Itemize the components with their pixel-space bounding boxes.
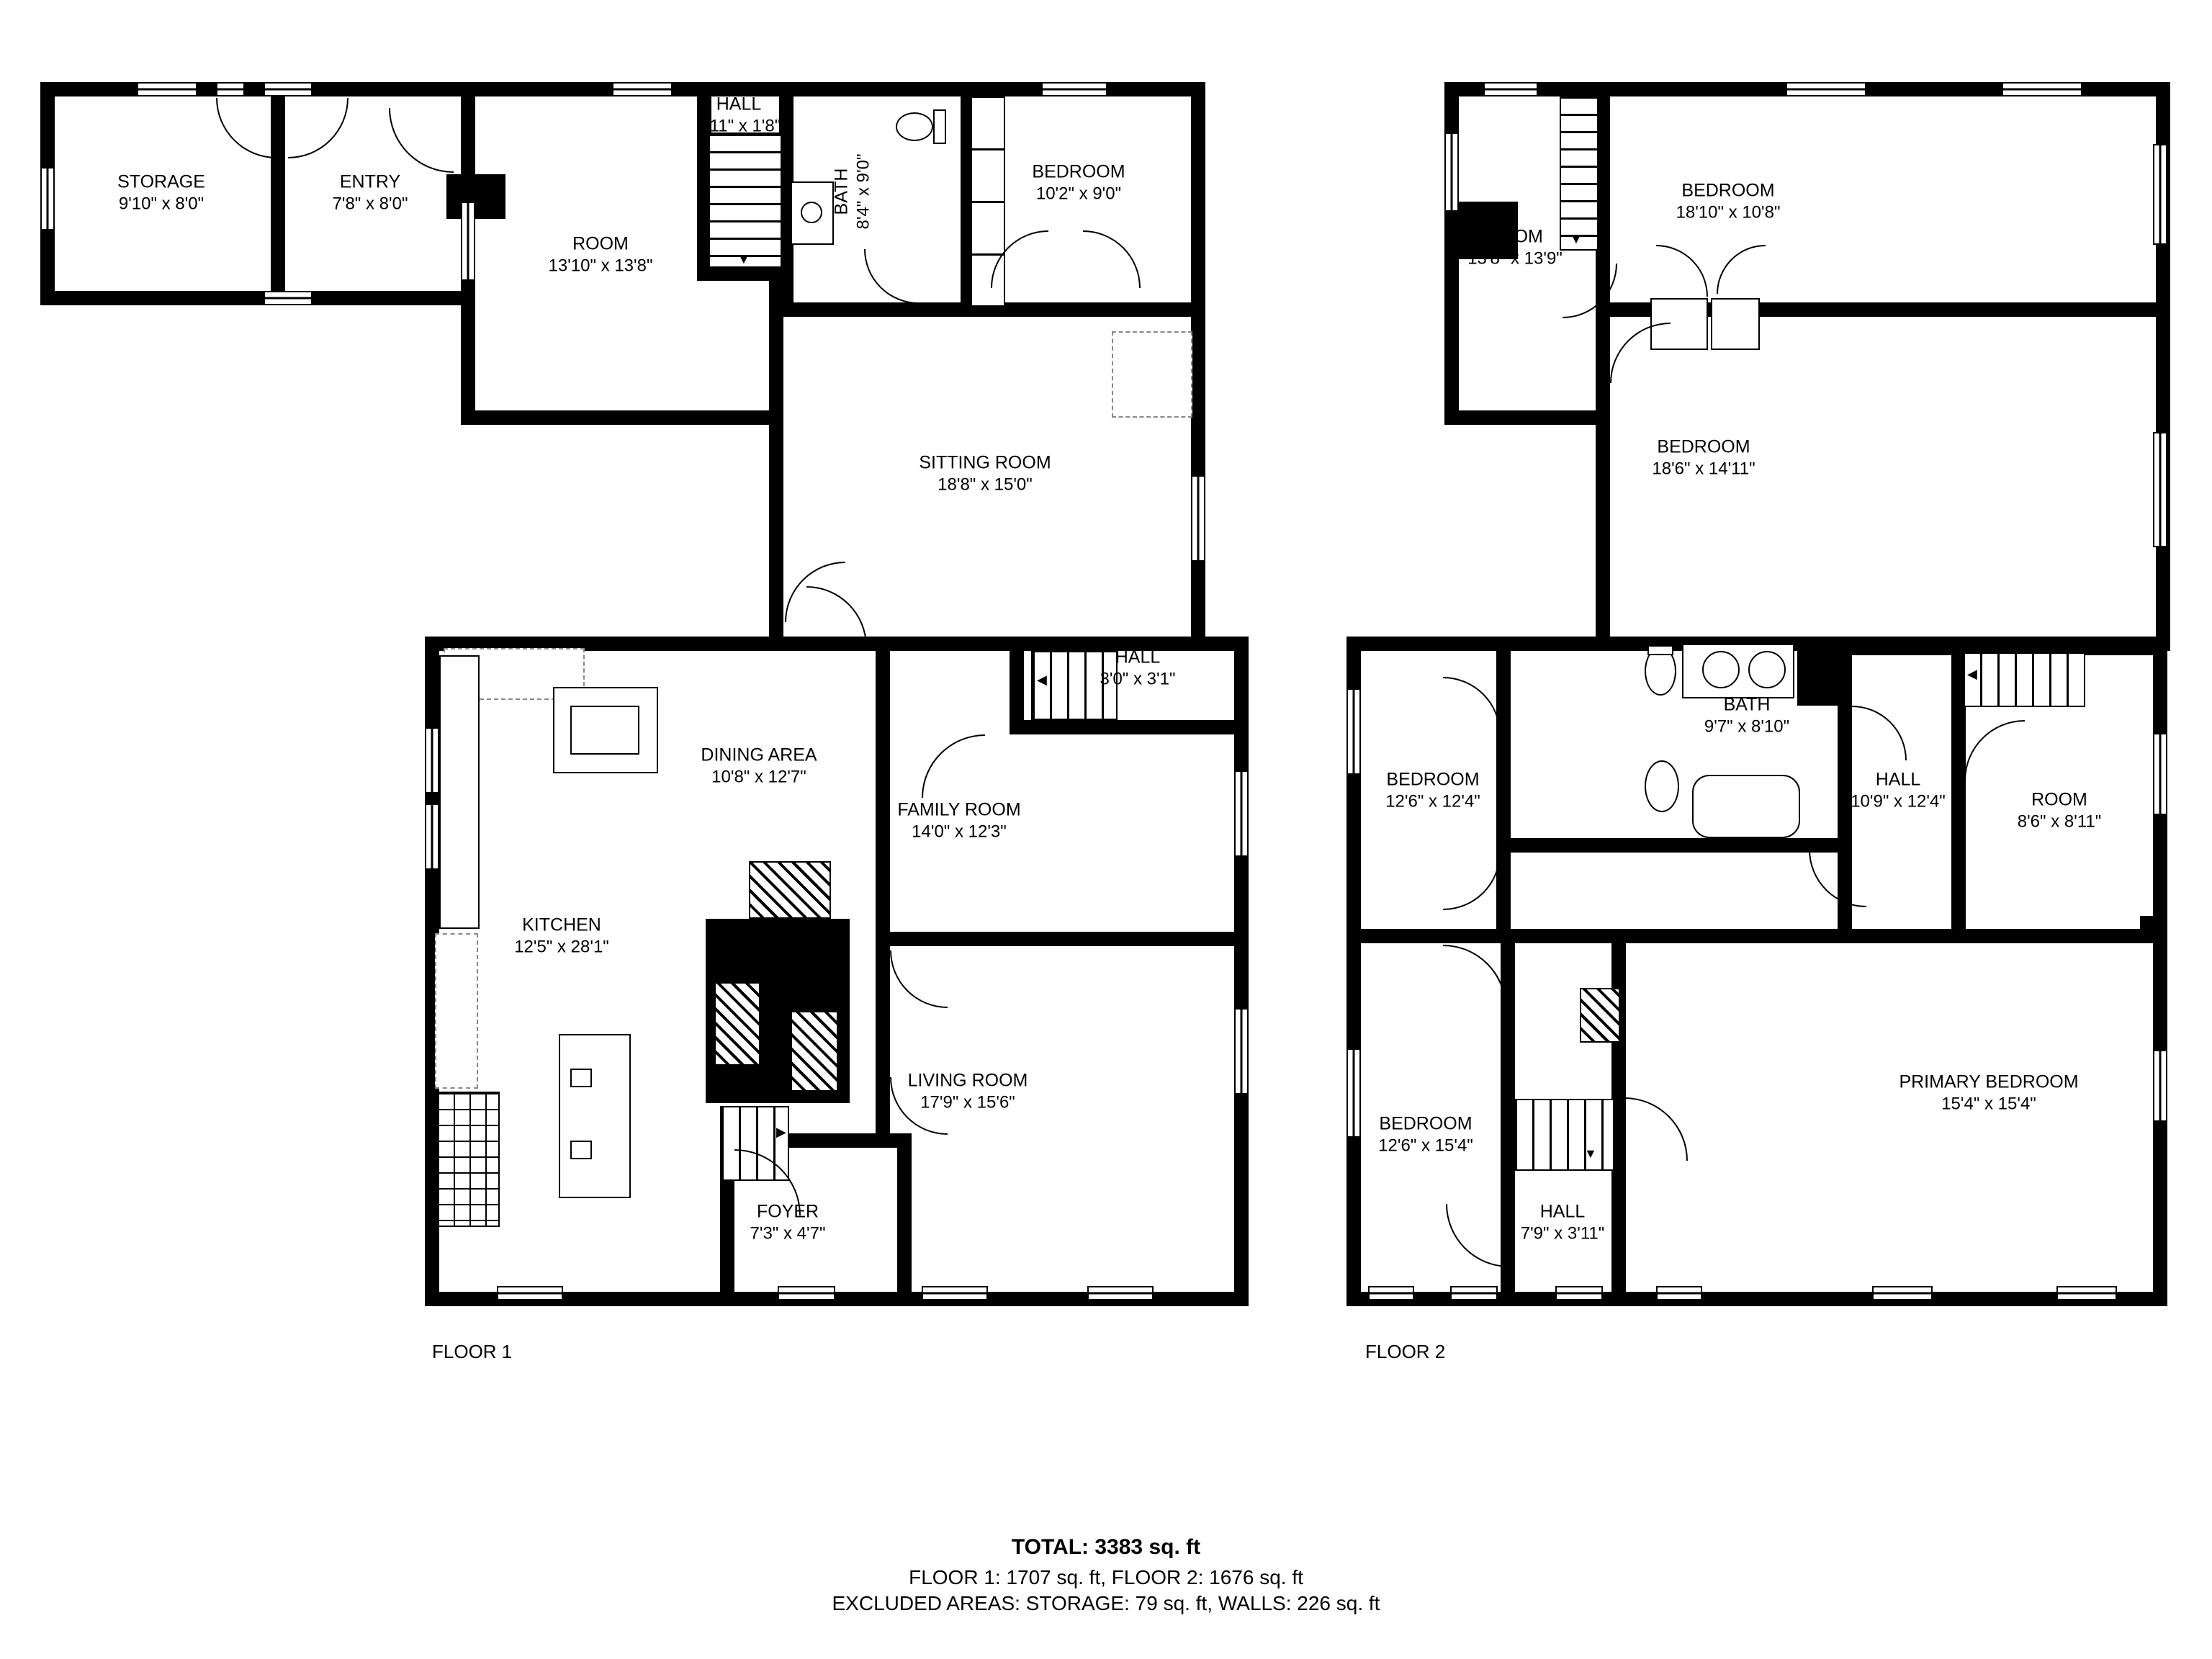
window-icon: [40, 167, 55, 230]
fireplace-hatch-icon: [714, 982, 760, 1066]
sink-icon: [1748, 651, 1786, 688]
window-icon: [216, 82, 245, 96]
window-icon: [2153, 432, 2167, 547]
window-icon: [1483, 82, 1538, 96]
window-icon: [1087, 1286, 1154, 1300]
stairs-arrow-left-icon: ◀: [1967, 668, 1977, 681]
room-label-small-room: ROOM8'6" x 8'11": [2018, 790, 2102, 832]
sink-icon: [1702, 651, 1740, 688]
bathtub-icon: [1692, 775, 1800, 838]
room-label-bedroom-126-124: BEDROOM12'6" x 12'4": [1385, 770, 1480, 812]
kitchen-range-top: [570, 706, 639, 755]
room-label-sitting: SITTING ROOM18'8" x 15'0": [919, 453, 1051, 495]
window-icon: [1444, 132, 1459, 212]
window-icon: [1656, 1286, 1702, 1300]
window-icon: [137, 82, 197, 96]
window-icon: [1786, 82, 1866, 96]
window-icon: [1234, 770, 1249, 857]
room-label-hall-small: HALL2'11" x 1'8": [697, 94, 781, 137]
window-icon: [1234, 1008, 1249, 1094]
kitchen-sink-icon: [570, 1069, 592, 1087]
window-icon: [2153, 144, 2167, 245]
floor1-stairs-up-icon: [709, 132, 782, 268]
window-icon: [1450, 1286, 1498, 1300]
window-icon: [1191, 475, 1205, 562]
window-icon: [1368, 1286, 1414, 1300]
window-icon: [461, 202, 475, 281]
fireplace-hatch-icon: [749, 861, 831, 919]
window-icon: [425, 804, 439, 870]
floorplan-canvas: ▼ ◀ ▶: [0, 0, 2212, 1659]
floor2-room-primary: [1619, 936, 2160, 1299]
stairs-arrow-down-icon: ▼: [1570, 233, 1583, 246]
room-label-dining: DINING AREA10'8" x 12'7": [701, 745, 817, 788]
window-icon: [2002, 82, 2082, 96]
stairs-arrow-left-icon: ◀: [1037, 674, 1047, 687]
kitchen-sink-icon: [570, 1141, 592, 1159]
floor2-stairs-icon: [1560, 95, 1599, 251]
window-icon: [612, 82, 673, 96]
kitchen-cabinet-grid: [436, 1092, 500, 1227]
window-icon: [922, 1286, 988, 1300]
fireplace-hatch-icon: [1580, 988, 1620, 1043]
stairs-arrow-down-icon: ▼: [1584, 1148, 1597, 1161]
window-icon: [497, 1286, 563, 1300]
floor2-mid-stairs-icon: [1961, 652, 2085, 707]
window-icon: [1346, 1048, 1361, 1138]
room-label-storage: STORAGE9'10" x 8'0": [117, 172, 205, 215]
window-icon: [1872, 1286, 1933, 1300]
room-label-foyer: FOYER7'3" x 4'7": [750, 1202, 826, 1244]
toilet-icon: [896, 112, 933, 141]
summary-excluded: EXCLUDED AREAS: STORAGE: 79 sq. ft, WALL…: [0, 1591, 2212, 1614]
sink-icon: [801, 202, 822, 223]
window-icon: [2153, 1050, 2167, 1122]
room-label-hall-stair: HALL3'0" x 3'1": [1100, 647, 1176, 690]
floor2-tag: FLOOR 2: [1365, 1341, 1445, 1362]
window-icon: [425, 727, 439, 793]
kitchen-counter: [439, 655, 480, 929]
window-icon: [1555, 1286, 1603, 1300]
closet: [1711, 298, 1760, 350]
fireplace-hatch-icon: [791, 1011, 838, 1092]
kitchen-lower-cabinet: [435, 933, 478, 1089]
room-label-kitchen: KITCHEN12'5" x 28'1": [514, 915, 609, 958]
summary-total: TOTAL: 3383 sq. ft: [0, 1535, 2212, 1560]
room-label-bath: BATH8'4" x 9'0": [832, 154, 874, 230]
window-icon: [2056, 1286, 2117, 1300]
window-icon: [264, 291, 313, 305]
bath-chimney-block: [1797, 644, 1845, 706]
window-seat: [1112, 331, 1192, 418]
window-icon: [1346, 688, 1361, 775]
room-label-entry: ENTRY7'8" x 8'0": [333, 172, 408, 215]
room-label-family: FAMILY ROOM14'0" x 12'3": [897, 800, 1020, 842]
stairs-arrow-down-icon: ▼: [737, 253, 750, 266]
room-label-bath2: BATH9'7" x 8'10": [1704, 695, 1789, 737]
floor1-tag: FLOOR 1: [432, 1341, 512, 1362]
stairs-arrow-right-icon: ▶: [776, 1126, 786, 1139]
toilet-icon: [1645, 760, 1679, 812]
window-icon: [778, 1286, 835, 1300]
room-label-bedroom-186: BEDROOM18'6" x 14'11": [1652, 437, 1755, 480]
room-label-bedroom-126-154: BEDROOM12'6" x 15'4": [1378, 1114, 1473, 1156]
summary-floors: FLOOR 1: 1707 sq. ft, FLOOR 2: 1676 sq. …: [0, 1565, 2212, 1588]
window-icon: [2153, 733, 2167, 815]
room-label-bedroom-1810: BEDROOM18'10" x 10'8": [1676, 181, 1781, 223]
kitchen-island: [559, 1034, 631, 1198]
room-label-hall2: HALL10'9" x 12'4": [1851, 770, 1946, 812]
room-label-living: LIVING ROOM17'9" x 15'6": [908, 1071, 1028, 1113]
floor2-hall-stairs-icon: [1514, 1099, 1614, 1171]
room-label-hall-lower: HALL7'9" x 3'11": [1521, 1202, 1605, 1244]
floor2-room-hall-arm: [1503, 845, 1845, 936]
room-label-room: ROOM13'10" x 13'8": [549, 234, 653, 276]
room-label-primary: PRIMARY BEDROOM15'4" x 15'4": [1899, 1072, 2078, 1115]
room-label-bedroom: BEDROOM10'2" x 9'0": [1032, 162, 1125, 204]
window-icon: [1041, 82, 1107, 96]
floor1-chimney-block: [446, 174, 505, 219]
window-icon: [264, 82, 313, 96]
area-summary: TOTAL: 3383 sq. ft FLOOR 1: 1707 sq. ft,…: [0, 1535, 2212, 1614]
room-label-room2: ROOM13'8" x 13'9": [1467, 227, 1563, 269]
toilet-tank-icon: [933, 109, 946, 144]
corner-block: [2140, 916, 2163, 939]
toilet-tank-icon: [1647, 645, 1673, 655]
